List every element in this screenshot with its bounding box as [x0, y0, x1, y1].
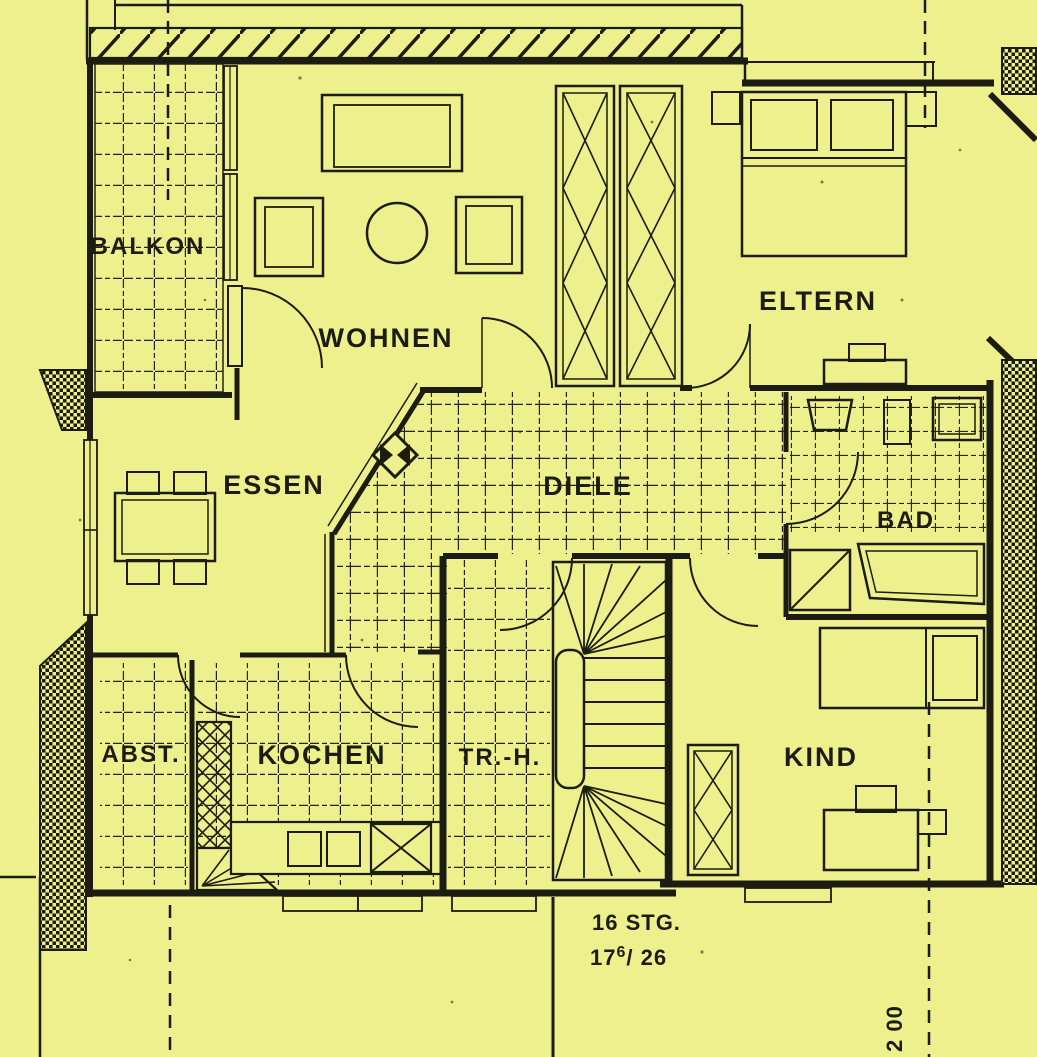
room-kochen [197, 652, 443, 890]
room-label-abst: ABST. [101, 741, 180, 768]
room-label-kind: KIND [784, 742, 858, 772]
room-label-balkon: BALKON [91, 233, 206, 260]
stair-count-text: 16 STG. [592, 910, 681, 935]
room-label-wohnen: WOHNEN [319, 323, 454, 353]
room-label-kochen: KOCHEN [257, 740, 386, 770]
floor-plan-page: BALKON WOHNEN ESSEN ELTERN DIELE BAD ABS… [0, 0, 1037, 1057]
vertical-dimension-text: 2 00 [882, 1005, 907, 1052]
stair-ratio-text: 176/ 26 [590, 944, 667, 970]
balcony-tiles [95, 64, 223, 392]
trh-tiles [448, 560, 550, 886]
essen-window [84, 440, 97, 615]
floor-plan-drawing: BALKON WOHNEN ESSEN ELTERN DIELE BAD ABS… [0, 0, 1037, 1057]
abst-tiles [100, 660, 188, 888]
room-label-bad: BAD [877, 507, 935, 534]
room-label-diele: DIELE [543, 471, 633, 501]
balcony-door-leaf [228, 286, 242, 366]
stair-ratio-denominator: / 26 [626, 945, 667, 970]
room-label-essen: ESSEN [223, 470, 325, 500]
roof-hatch-band [90, 28, 742, 58]
room-label-trh: TR.-H. [459, 744, 542, 771]
stair-ratio-base: 17 [590, 945, 616, 970]
room-abst [100, 660, 192, 890]
room-label-eltern: ELTERN [759, 286, 877, 316]
stair-ratio-superscript: 6 [616, 944, 626, 961]
